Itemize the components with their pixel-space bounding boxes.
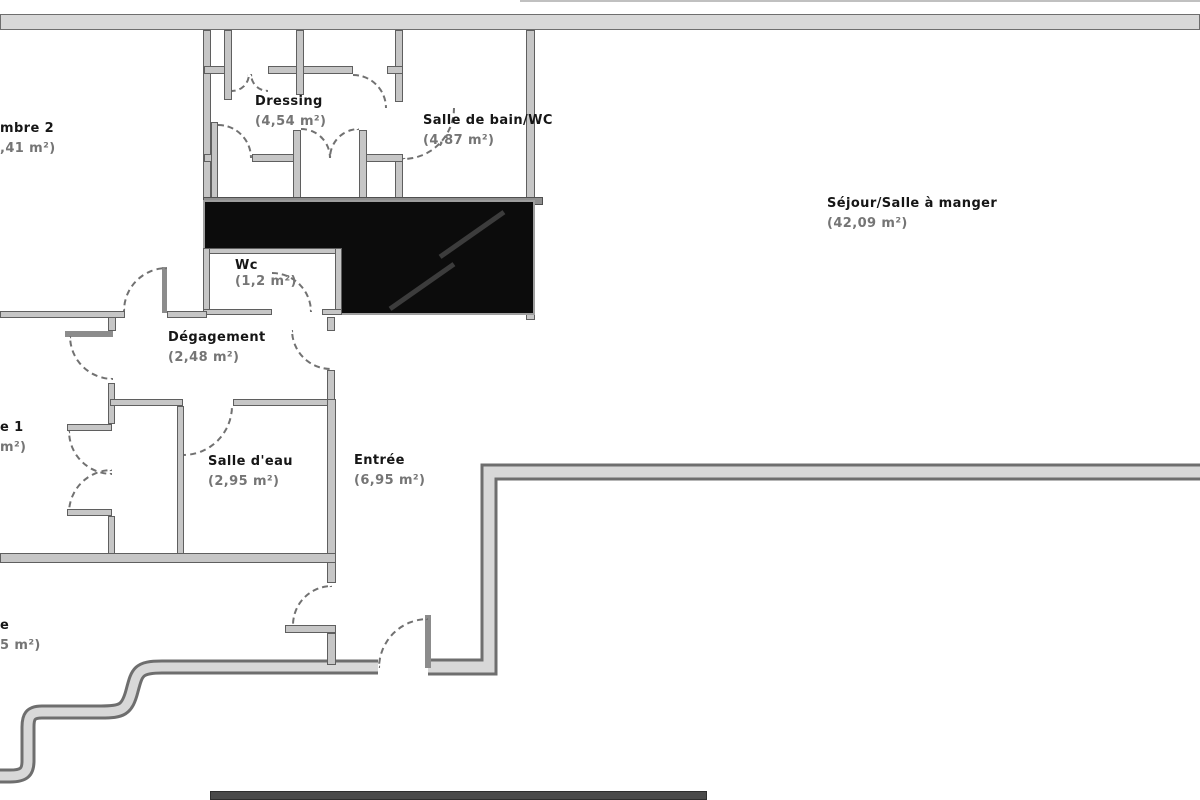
wall-segment — [233, 399, 333, 406]
wall-segment — [211, 122, 218, 202]
wall-segment — [0, 553, 336, 563]
room-label-salle-deau: Salle d'eau (2,95 m²) — [208, 452, 293, 491]
wall-segment — [210, 791, 707, 800]
room-label-degagement: Dégagement (2,48 m²) — [168, 328, 266, 367]
wall-segment — [268, 66, 353, 74]
room-label-dressing: Dressing (4,54 m²) — [255, 92, 326, 131]
wall-segment — [296, 30, 304, 95]
wall-segment — [108, 516, 115, 556]
shaft-highlight — [439, 210, 506, 259]
wall-segment — [108, 317, 116, 331]
room-label-sejour: Séjour/Salle à manger (42,09 m²) — [827, 194, 997, 233]
wall-segment — [327, 317, 335, 331]
wall-segment — [203, 248, 210, 315]
wall-segment — [327, 633, 336, 665]
wall-segment — [224, 30, 232, 100]
floor-plan: mbre 2 ,41 m²) Dressing (4,54 m²) Salle … — [0, 0, 1200, 800]
room-label-wc: Wc (1,2 m²) — [235, 258, 297, 291]
wall-segment — [387, 66, 403, 74]
room-label-chambre2: mbre 2 ,41 m²) — [0, 119, 56, 158]
wall-segment — [110, 399, 183, 406]
wall-segment — [293, 130, 301, 202]
wall-segment — [167, 311, 207, 318]
wall-segment — [177, 406, 184, 558]
wall-segment — [203, 309, 272, 315]
wall-segment — [203, 248, 342, 254]
wall-segment — [67, 424, 112, 431]
wall-segment — [359, 130, 367, 202]
wall-segment — [0, 311, 125, 318]
room-label-chambre1: e 1 m²) — [0, 418, 26, 457]
wall-segment — [322, 309, 342, 315]
room-label-piece-bas: e 5 m²) — [0, 616, 41, 655]
room-label-salle-de-bain: Salle de bain/WC (4,87 m²) — [423, 111, 553, 150]
wall-segment — [335, 248, 342, 315]
wall-segment — [285, 625, 336, 633]
wall-segment — [67, 509, 112, 516]
wall-segment — [203, 30, 211, 205]
wall-segment — [0, 14, 1200, 30]
room-label-entree: Entrée (6,95 m²) — [354, 451, 425, 490]
shaft-highlight — [389, 262, 456, 311]
wall-segment — [520, 0, 1200, 2]
